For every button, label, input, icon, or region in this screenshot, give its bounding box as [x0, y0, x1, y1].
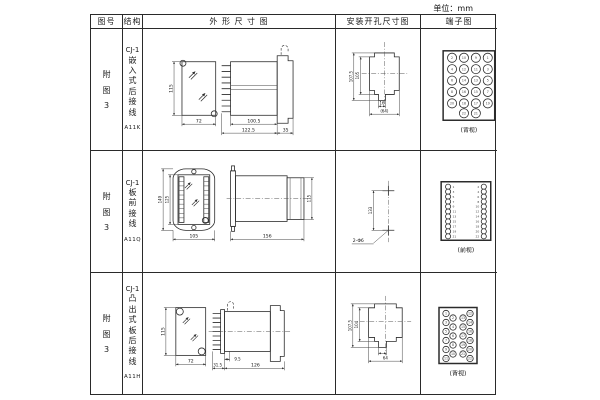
svg-text:5: 5: [445, 330, 447, 334]
svg-text:16: 16: [476, 220, 480, 224]
dim-label: 107.5: [348, 71, 353, 83]
header-terminal: 端子图: [421, 15, 497, 29]
svg-text:2: 2: [451, 56, 453, 60]
dim-label: 115: [306, 194, 311, 202]
svg-text:4: 4: [451, 67, 453, 71]
svg-text:5: 5: [453, 195, 455, 199]
screw-hole: [192, 225, 196, 229]
screw-hole: [192, 169, 196, 173]
svg-text:6: 6: [452, 334, 454, 338]
outline-drawing-row3: 115 72 9.5 31.5 126: [143, 273, 336, 394]
svg-text:3: 3: [453, 190, 455, 194]
dim-label: 133: [368, 206, 373, 214]
svg-text:9: 9: [453, 205, 455, 209]
view-label: (前视): [458, 246, 475, 254]
terminal-pins: [222, 66, 231, 112]
svg-text:2: 2: [452, 316, 454, 320]
dim-label: 31.5: [213, 363, 222, 368]
dim-label: 64: [383, 356, 389, 361]
model-code: A11H: [124, 375, 141, 381]
model-label: CJ-1: [126, 286, 140, 293]
figure-char: 3: [104, 345, 109, 354]
mount-hole: [180, 60, 186, 66]
dim-label: 9.5: [234, 357, 241, 362]
outline-drawing-row1: 115 72 100.5 122.5 35: [143, 29, 336, 151]
unit-label: 单位：mm: [373, 3, 473, 14]
outline-drawing-row2: 149 125 105 156 115: [143, 151, 336, 273]
svg-text:18: 18: [476, 225, 480, 229]
terminal-drawing-row3: 12345678910111213141516171819202122 (背视): [421, 273, 497, 394]
mirror-mark: [192, 199, 199, 206]
figure-char: 图: [103, 207, 111, 218]
svg-text:8: 8: [452, 343, 454, 347]
svg-text:14: 14: [468, 321, 472, 325]
figure-char: 附: [103, 313, 111, 324]
mounting-svg-row2: 133 2-Φ6: [336, 151, 420, 272]
figure-char: 图: [103, 329, 111, 340]
dim-label: 156: [263, 233, 272, 239]
svg-text:13: 13: [461, 316, 465, 320]
svg-text:17: 17: [474, 101, 478, 105]
dim-label: 107.5: [347, 319, 352, 331]
svg-text:10: 10: [451, 352, 455, 356]
handle-hook: [281, 45, 288, 54]
structure-cell-row3: CJ-1 凸 出 式 板 后 接 线 A11H: [123, 273, 143, 394]
mirror-mark: [183, 317, 190, 324]
figure-char: 3: [104, 101, 109, 110]
svg-text:15: 15: [453, 220, 457, 224]
dim-label: 115: [169, 84, 175, 93]
svg-text:6: 6: [451, 79, 453, 83]
svg-text:14: 14: [462, 79, 466, 83]
svg-text:22: 22: [476, 234, 480, 238]
svg-text:12: 12: [462, 67, 466, 71]
svg-text:21: 21: [453, 234, 457, 238]
svg-text:15: 15: [461, 325, 465, 329]
svg-text:7: 7: [445, 339, 447, 343]
svg-text:17: 17: [453, 225, 457, 229]
dim-label: 126: [251, 363, 260, 369]
svg-text:21: 21: [461, 352, 465, 356]
svg-text:19: 19: [486, 101, 490, 105]
handle-hook: [228, 302, 234, 311]
view-label: (背视): [461, 126, 478, 134]
terminal-circles: 13579111315171921246810121416182022: [446, 184, 487, 239]
svg-text:19: 19: [461, 343, 465, 347]
svg-text:4: 4: [477, 190, 479, 194]
flange-tab: [232, 166, 235, 171]
header-figure: 图号: [91, 15, 123, 29]
svg-text:17: 17: [461, 334, 465, 338]
svg-text:12: 12: [476, 210, 480, 214]
dim-label: 72: [196, 118, 202, 124]
svg-text:10: 10: [462, 56, 466, 60]
side-view-body: [231, 62, 278, 116]
svg-text:7: 7: [453, 200, 455, 204]
svg-text:11: 11: [474, 67, 478, 71]
svg-text:10: 10: [476, 205, 480, 209]
mirror-mark: [191, 334, 198, 341]
mirror-mark: [185, 182, 192, 189]
mount-hole: [176, 308, 183, 315]
dim-label: 115: [160, 327, 166, 336]
svg-text:7: 7: [487, 90, 489, 94]
hole-spec-label: 2-Φ6: [353, 238, 364, 244]
terminal-svg-row1: 21091412113614135816157201817192221 (背视): [421, 29, 497, 150]
terminal-drawing-row2: 13579111315171921246810121416182022 (前视): [421, 151, 497, 273]
svg-text:3: 3: [445, 321, 447, 325]
dim-label: (64): [380, 109, 389, 114]
dim-label: 72: [188, 359, 194, 365]
mirror-mark: [189, 71, 197, 79]
svg-text:16: 16: [468, 330, 472, 334]
outline-svg-row3: 115 72 9.5 31.5 126: [143, 273, 335, 394]
dim-label: 16: [379, 101, 385, 106]
svg-text:21: 21: [474, 111, 478, 115]
svg-text:11: 11: [453, 210, 457, 214]
svg-text:13: 13: [474, 79, 478, 83]
dim-label: 104: [354, 320, 359, 328]
header-outline: 外 形 尺 寸 图: [143, 15, 336, 29]
figure-char: 图: [103, 85, 111, 96]
svg-text:20: 20: [450, 101, 454, 105]
mounting-drawing-row2: 133 2-Φ6: [336, 151, 421, 273]
header-structure: 结构: [123, 15, 143, 29]
mirror-mark: [199, 93, 207, 101]
svg-text:16: 16: [462, 90, 466, 94]
dim-label: 125: [165, 195, 170, 203]
svg-text:20: 20: [468, 348, 472, 352]
dim-label: 149: [158, 195, 163, 203]
figure-char: 附: [103, 69, 111, 80]
figure-cell-row3: 附 图 3: [91, 273, 123, 394]
header-mounting: 安装开孔尺寸图: [336, 15, 421, 29]
mounting-drawing-row1: 107.5 105 16 (64): [336, 29, 421, 151]
terminal-circles: 21091412113614135816157201817192221: [447, 53, 492, 118]
svg-text:22: 22: [468, 357, 472, 361]
dim-label: 100.5: [247, 118, 260, 124]
model-label: CJ-1: [126, 180, 140, 187]
svg-text:18: 18: [468, 339, 472, 343]
svg-text:1: 1: [487, 56, 489, 60]
terminal-drawing-row1: 21091412113614135816157201817192221 (背视): [421, 29, 497, 151]
structure-cell-row2: CJ-1 板 前 接 线 A11Q: [123, 151, 143, 273]
mount-hole: [211, 111, 217, 117]
structure-cell-row1: CJ-1 嵌 入 式 后 接 线 A11K: [123, 29, 143, 151]
svg-text:8: 8: [477, 200, 479, 204]
model-code: A11Q: [124, 238, 141, 244]
mounting-svg-row1: 107.5 105 16 (64): [336, 29, 420, 150]
svg-text:3: 3: [487, 67, 489, 71]
svg-text:5: 5: [487, 79, 489, 83]
svg-text:22: 22: [462, 111, 466, 115]
rear-flange: [277, 56, 293, 123]
front-view: [182, 62, 216, 116]
mount-hole: [198, 348, 205, 355]
flange-tab: [232, 226, 235, 231]
model-label: CJ-1: [126, 47, 140, 54]
dim-label: 105: [355, 71, 360, 79]
svg-text:9: 9: [475, 56, 477, 60]
svg-text:15: 15: [474, 90, 478, 94]
svg-text:13: 13: [453, 215, 457, 219]
mounting-drawing-row3: 107.5 104 64: [336, 273, 421, 394]
svg-text:20: 20: [476, 230, 480, 234]
outline-svg-row1: 115 72 100.5 122.5 35: [143, 29, 335, 150]
svg-text:8: 8: [451, 90, 453, 94]
svg-text:18: 18: [462, 101, 466, 105]
svg-text:9: 9: [445, 348, 447, 352]
dim-label: 105: [190, 233, 199, 239]
view-label: (背视): [450, 370, 467, 378]
svg-text:4: 4: [452, 325, 454, 329]
spec-table: 图号 结构 外 形 尺 寸 图 安装开孔尺寸图 端子图 附 图 3 CJ-1 嵌…: [90, 14, 496, 395]
rear-flange: [270, 306, 284, 362]
outline-svg-row2: 149 125 105 156 115: [143, 151, 335, 272]
mounting-svg-row3: 107.5 104 64: [336, 273, 420, 394]
figure-char: 3: [104, 223, 109, 232]
svg-text:1: 1: [445, 312, 447, 316]
dim-label: 122.5: [242, 127, 255, 133]
figure-cell-row2: 附 图 3: [91, 151, 123, 273]
svg-text:14: 14: [476, 215, 480, 219]
terminal-svg-row2: 13579111315171921246810121416182022 (前视): [421, 151, 497, 272]
svg-text:12: 12: [468, 312, 472, 316]
dim-label: 35: [283, 127, 289, 133]
model-code: A11K: [124, 126, 140, 132]
terminal-circles: 12345678910111213141516171819202122: [443, 310, 473, 361]
svg-text:2: 2: [477, 185, 479, 189]
svg-text:11: 11: [444, 357, 448, 361]
svg-text:1: 1: [453, 185, 455, 189]
svg-text:6: 6: [477, 195, 479, 199]
figure-cell-row1: 附 图 3: [91, 29, 123, 151]
terminal-svg-row3: 12345678910111213141516171819202122 (背视): [421, 273, 497, 394]
svg-text:19: 19: [453, 230, 457, 234]
figure-char: 附: [103, 191, 111, 202]
